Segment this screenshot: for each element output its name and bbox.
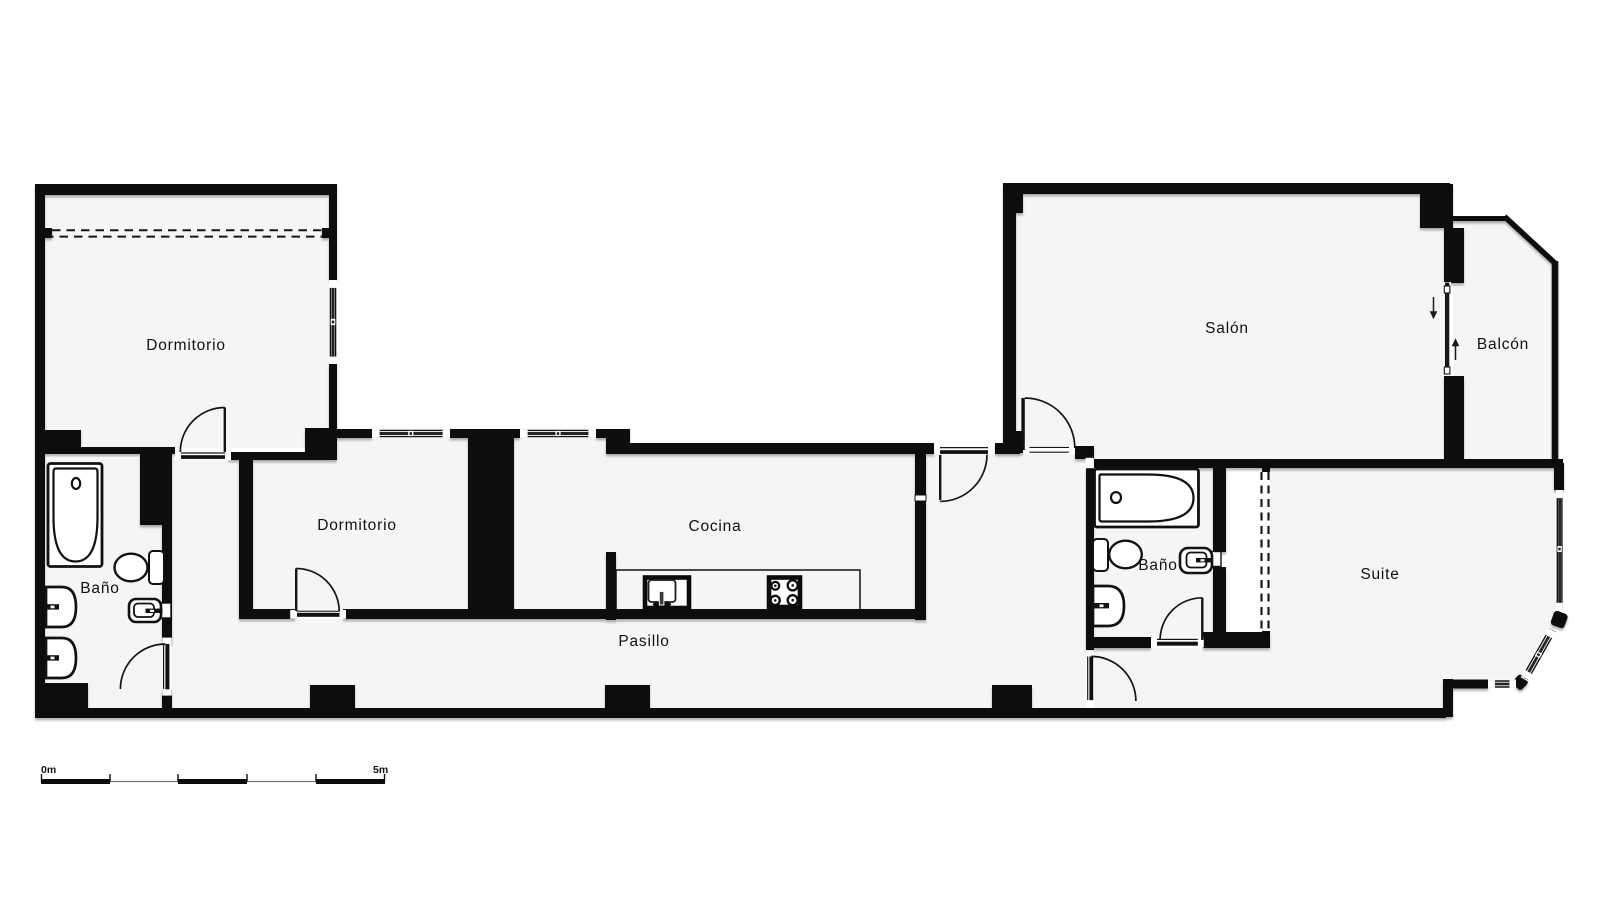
svg-text:Salón: Salón: [1205, 320, 1249, 337]
svg-text:Pasillo: Pasillo: [618, 633, 669, 650]
svg-text:5m: 5m: [373, 764, 388, 776]
svg-text:Baño: Baño: [80, 580, 119, 597]
svg-text:Suite: Suite: [1360, 566, 1399, 583]
svg-text:Baño: Baño: [1138, 557, 1177, 574]
svg-text:Cocina: Cocina: [688, 518, 741, 535]
svg-text:0m: 0m: [41, 764, 56, 776]
svg-text:Dormitorio: Dormitorio: [146, 337, 225, 354]
svg-text:Balcón: Balcón: [1477, 336, 1529, 353]
svg-text:Dormitorio: Dormitorio: [317, 517, 396, 534]
